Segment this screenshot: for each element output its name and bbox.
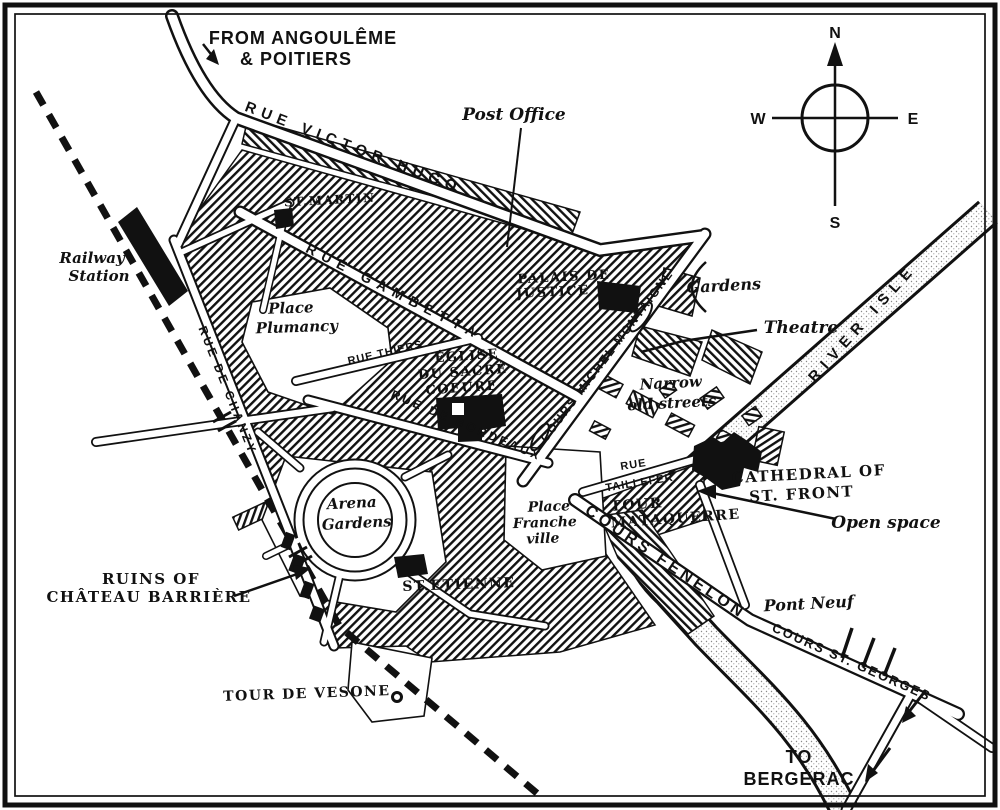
narrow-old-streets-label-1: Narrow	[638, 372, 703, 393]
tour-de-vesone-marker	[393, 693, 402, 702]
ruins-label-2: CHÂTEAU BARRIÈRE	[46, 588, 251, 606]
place-francheville-label-3: ville	[526, 530, 560, 547]
from-angouleme-label-2: & POITIERS	[240, 49, 352, 69]
arena-gardens-label-1: Arena	[324, 493, 377, 514]
gardens-label: Gardens	[686, 274, 761, 297]
compass-w-label: W	[750, 111, 766, 128]
theatre-label: Theatre	[764, 318, 839, 338]
st-martin-church	[274, 208, 294, 229]
to-bergerac-label-1: TO	[786, 747, 813, 767]
place-francheville-label-1: Place	[526, 498, 570, 516]
open-space-label: Open space	[831, 513, 941, 533]
st-etienne-church	[394, 554, 428, 578]
town-map: N S W E FROM ANGOULÊME & POITIERS TO BER…	[0, 0, 1000, 810]
railway-station-label-1: Railway	[58, 249, 126, 267]
from-angouleme-label-1: FROM ANGOULÊME	[209, 27, 397, 48]
post-office-label: Post Office	[461, 105, 566, 125]
place-francheville-label-2: Franche	[512, 514, 578, 532]
compass-n-label: N	[829, 25, 841, 42]
place-plumancy-label-1: Place	[267, 298, 314, 318]
to-bergerac-label-2: BERGERAC	[743, 769, 854, 789]
place-plumancy-label-2: Plumancy	[254, 317, 339, 338]
ruins-label-1: RUINS OF	[102, 570, 200, 588]
map-canvas: N S W E FROM ANGOULÊME & POITIERS TO BER…	[0, 0, 1000, 810]
railway-station-label-2: Station	[68, 267, 129, 285]
compass-s-label: S	[830, 215, 841, 232]
arena-gardens-label-2: Gardens	[321, 512, 392, 534]
compass-e-label: E	[908, 111, 919, 128]
